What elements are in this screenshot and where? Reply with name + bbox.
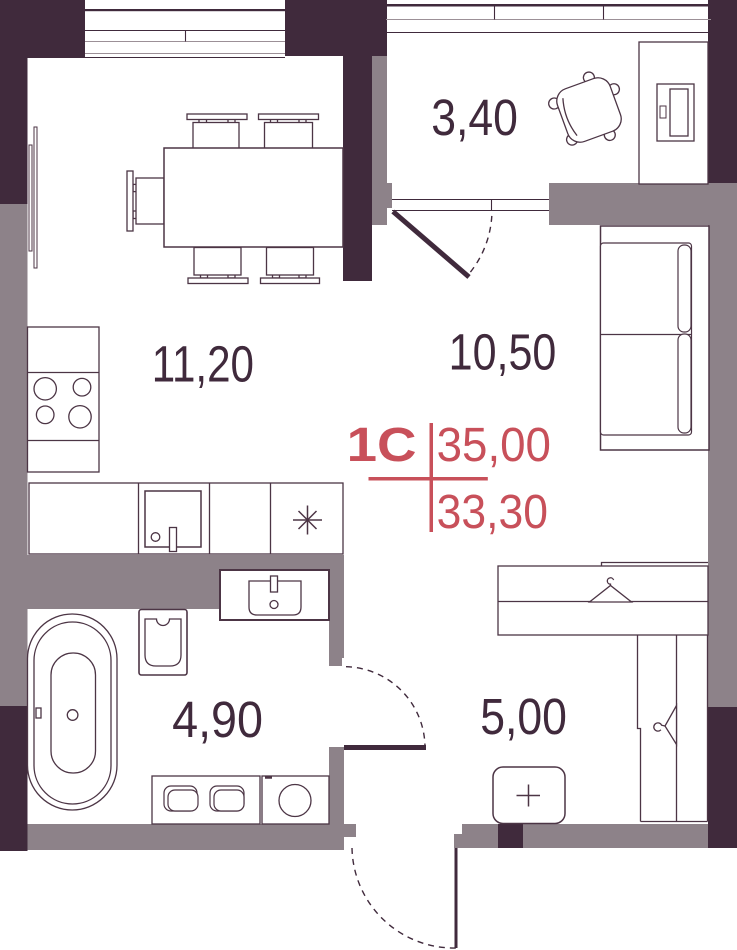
svg-text:11,20: 11,20 — [152, 336, 254, 393]
svg-text:35,00: 35,00 — [437, 418, 551, 471]
svg-text:1С: 1С — [347, 417, 417, 471]
svg-text:4,90: 4,90 — [172, 692, 263, 748]
svg-text:3,40: 3,40 — [431, 90, 518, 146]
svg-text:33,30: 33,30 — [437, 484, 548, 538]
svg-text:10,50: 10,50 — [449, 324, 557, 381]
svg-text:5,00: 5,00 — [480, 689, 567, 745]
